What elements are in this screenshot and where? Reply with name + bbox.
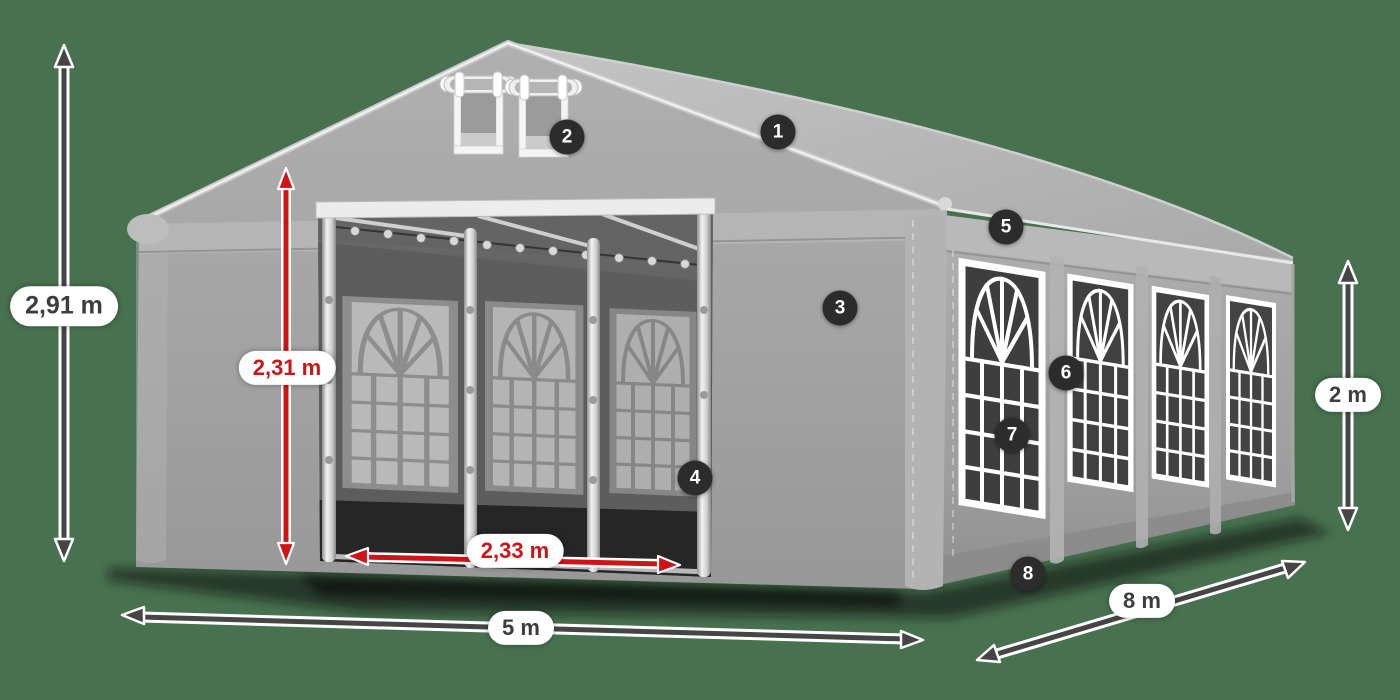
- feature-badge-4[interactable]: 4: [678, 461, 713, 496]
- dimension-label-side-length: 8 m: [1109, 584, 1175, 618]
- dimension-label-front-width: 5 m: [488, 611, 554, 645]
- feature-badge-2[interactable]: 2: [550, 120, 585, 155]
- tent-door-opening: [316, 198, 715, 577]
- feature-badge-7[interactable]: 7: [995, 418, 1030, 453]
- feature-badge-8[interactable]: 8: [1011, 557, 1046, 592]
- dimension-label-door-width: 2,33 m: [467, 534, 564, 568]
- feature-badge-5[interactable]: 5: [989, 210, 1024, 245]
- dimension-label-wall-height: 2 m: [1315, 378, 1381, 412]
- tent-illustration: [0, 0, 1400, 700]
- feature-badge-3[interactable]: 3: [823, 291, 858, 326]
- tent-diagram-stage: 2,91 m 2,31 m 2,33 m 5 m 8 m 2 m 1 2 3 4…: [0, 0, 1400, 700]
- feature-badge-1[interactable]: 1: [761, 115, 796, 150]
- side-window-row: [962, 262, 1274, 515]
- dimension-label-total-height: 2,91 m: [10, 286, 118, 326]
- feature-badge-6[interactable]: 6: [1049, 356, 1084, 391]
- dimension-label-door-height: 2,31 m: [239, 351, 336, 385]
- tent-interior: [318, 208, 713, 577]
